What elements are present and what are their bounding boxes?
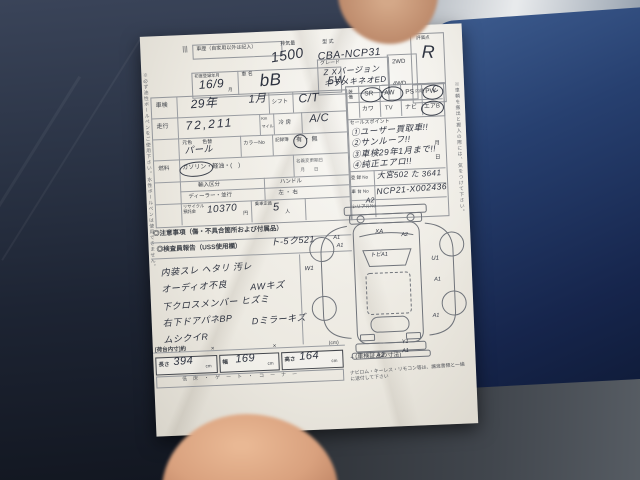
length-unit: cm <box>205 363 211 368</box>
note-mirror: Dミラーキズ <box>251 313 306 327</box>
inspector-heading: ◎検査員報告（USS使用欄） <box>157 243 242 254</box>
registration-no-label: 登 録 No <box>351 174 368 180</box>
stamp-marks: ||| <box>182 46 188 54</box>
damage-mark-windshield: トビA1 <box>370 250 388 259</box>
width-unit: cm <box>267 361 273 366</box>
recycle-deposit-label: リサイクル預託金 <box>183 204 205 215</box>
displacement-value: 1500 <box>270 45 305 65</box>
length-label: 長さ <box>158 362 169 369</box>
equip-navi: ナビ <box>405 104 417 111</box>
shaken-label: 車検 <box>156 103 168 110</box>
fuel-label: 燃料 <box>158 166 170 173</box>
capacity-unit: 人 <box>285 210 290 216</box>
shift-value: C/T <box>298 91 320 105</box>
month-field-label: 月 <box>434 140 440 147</box>
score-label: 評価点 <box>416 35 430 41</box>
height-label: 高さ <box>284 357 295 364</box>
handle-label: ハンドル <box>280 178 302 185</box>
light-streak <box>0 76 81 264</box>
damage-mark-front-top: A2 <box>366 197 375 204</box>
photo-scene: ※必ず油性ボールペンをご使用下さい。水性ボールペンは使用できません。 ※車輌を搬… <box>0 0 640 480</box>
note-chips: ムシクイR <box>163 333 209 346</box>
dims-times-1: × <box>211 346 215 353</box>
first-registration-unit: 月 <box>228 87 233 92</box>
length-value: 394 <box>173 356 194 369</box>
damage-diagram: A2 XA トビA1 A1 A1 A2 W1 U1 A1 A1 A2 Y1 A1 <box>300 199 476 364</box>
damage-mark-rear-corner-2: A1 <box>402 348 409 354</box>
car-name-label: 車 名 <box>241 72 253 78</box>
note-audio: オーディオ不良 <box>161 280 227 294</box>
damage-mark-rear-corner-1: Y1 <box>402 339 409 345</box>
note-aw-scratch: AWキズ <box>250 280 285 292</box>
width-label: 幅 <box>222 360 228 367</box>
shaken-year-value: 29年 <box>190 96 218 111</box>
width-value: 169 <box>235 353 256 366</box>
registration-class-value: 502 <box>393 171 408 181</box>
cargo-dims-label: [荷台内寸]約 <box>155 346 186 354</box>
cooling-value: A/C <box>309 113 330 126</box>
dims-cm-hint: (cm) <box>329 341 339 347</box>
shaken-month-value: 1月 <box>248 93 267 106</box>
drive-2wd-label: 2WD <box>392 59 406 66</box>
damage-mark-right-upper: A2 <box>401 232 408 238</box>
cooling-label: 冷 房 <box>278 120 291 127</box>
damage-mark-left-upper-1: A1 <box>333 235 340 241</box>
note-crossmember: 下クロスメンバー ヒズミ <box>162 295 270 313</box>
navi-key-note: ナビロム・キーレス・リモコン等は、譲渡書類と一緒に送付して下さい <box>350 362 468 382</box>
auction-sheet: ※必ず油性ボールペンをご使用下さい。水性ボールペンは使用できません。 ※車輌を搬… <box>140 23 478 436</box>
capacity-label: 乗車定員 <box>255 202 272 208</box>
registration-number-value: 3641 <box>421 169 441 179</box>
mileage-unit-km: Km <box>261 117 267 122</box>
damage-mark-right-rear: A1 <box>433 313 440 319</box>
capacity-value: 5 <box>273 202 280 214</box>
height-unit: cm <box>331 358 337 363</box>
car-name-value: bB <box>259 71 282 90</box>
mileage-label: 走行 <box>156 124 168 131</box>
chassis-no-label: 車 台 No <box>351 188 368 194</box>
registration-kana-value: た <box>410 170 419 179</box>
height-value: 164 <box>299 350 320 363</box>
score-value: R <box>422 43 436 62</box>
light-streak <box>1 39 140 261</box>
day-field-label: 日 <box>435 154 441 161</box>
transfer-deadline-sub: 月 日 <box>300 167 318 173</box>
import-label: 輸入区分 <box>198 182 220 189</box>
mileage-unit-mile: マイル <box>262 124 274 129</box>
damage-mark-left-door: W1 <box>305 266 314 272</box>
dims-times-2: × <box>273 343 277 350</box>
car-outline-drawing <box>300 199 476 364</box>
first-registration-value: 16/9 <box>198 77 224 92</box>
damage-mark-left-upper-2: A1 <box>337 243 344 249</box>
note-door-panel: 右下ドアパネBP <box>162 314 232 329</box>
equip-leather: カワ <box>362 106 374 113</box>
equip-tv: TV <box>385 105 393 112</box>
handle-options: 左 ・ 右 <box>278 189 298 196</box>
record-book-label: 記録簿 <box>275 137 289 143</box>
damage-mark-right-door-2: A1 <box>434 277 441 283</box>
model-code-label: 型 式 <box>322 40 334 46</box>
registration-area-value: 大宮 <box>377 171 395 181</box>
damage-mark-hood: XA <box>375 229 383 235</box>
shift-label: シフト <box>272 99 289 106</box>
equip-ps: PS <box>405 88 414 96</box>
color-no-label: カラーNo <box>243 141 265 148</box>
note-interior: 内装スレ ヘタリ 汚レ <box>160 262 252 278</box>
damage-mark-right-door-1: U1 <box>431 256 439 262</box>
recycle-unit: 円 <box>243 212 248 218</box>
